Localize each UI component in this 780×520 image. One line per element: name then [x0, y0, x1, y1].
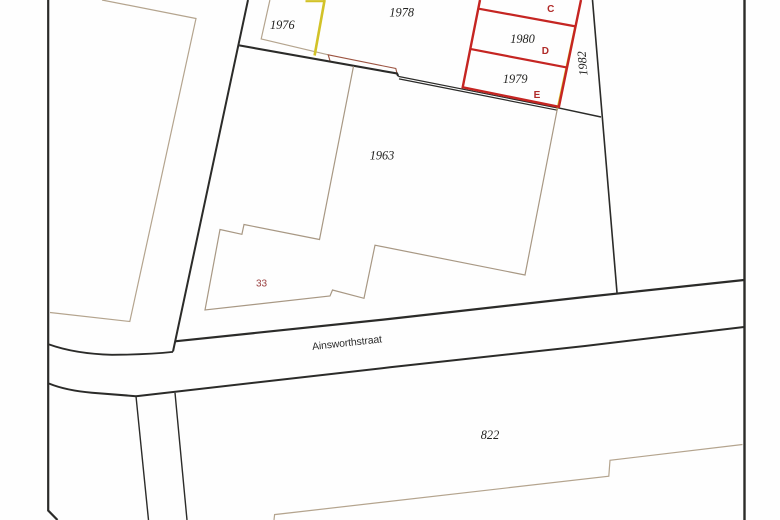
- svg-text:D: D: [542, 46, 549, 57]
- svg-text:1978: 1978: [389, 6, 414, 20]
- svg-text:C: C: [547, 4, 554, 15]
- svg-text:1963: 1963: [370, 149, 395, 163]
- svg-text:822: 822: [481, 428, 499, 442]
- svg-text:E: E: [534, 90, 541, 101]
- svg-text:33: 33: [256, 279, 268, 290]
- svg-text:1976: 1976: [270, 18, 295, 32]
- svg-text:1980: 1980: [510, 32, 535, 46]
- svg-text:1979: 1979: [503, 72, 528, 86]
- svg-text:1982: 1982: [574, 51, 590, 77]
